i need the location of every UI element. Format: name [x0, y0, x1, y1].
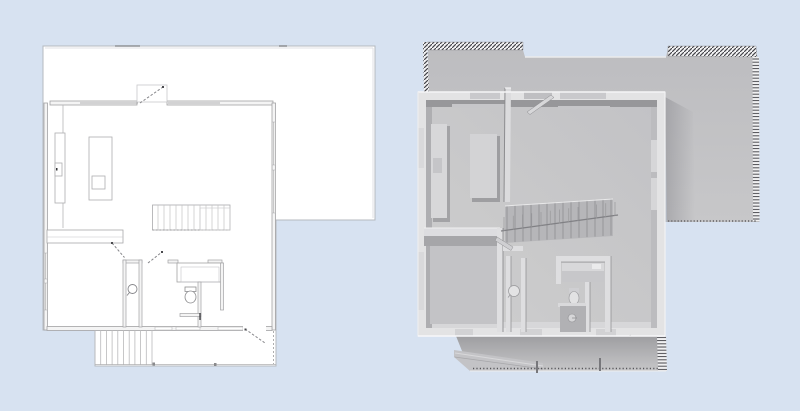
floorplan-3d-panel: [418, 42, 760, 373]
floorplan-2d-panel: [43, 46, 375, 366]
floor-plan-comparison: [0, 0, 800, 411]
scene-svg: [0, 0, 800, 411]
